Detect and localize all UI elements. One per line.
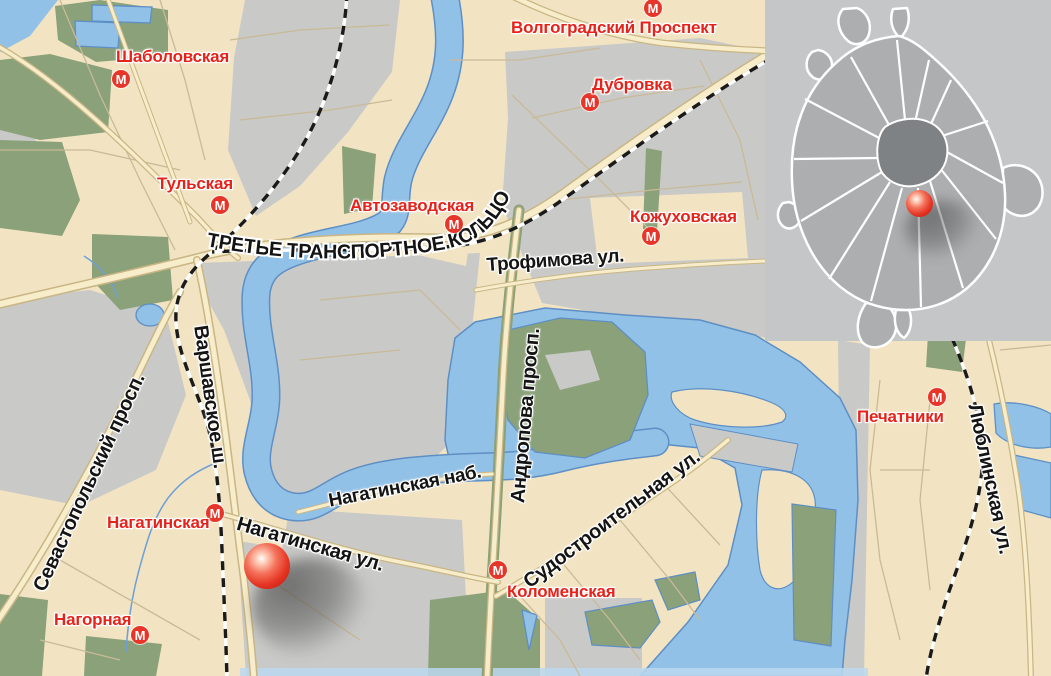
station-label-nagatinskaya: Нагатинская xyxy=(107,514,209,531)
moscow-district-map: ТРЕТЬЕ ТРАНСПОРТНОЕ КОЛЬЦО xyxy=(0,0,1051,676)
station-label-tulskaya: Тульская xyxy=(157,175,233,192)
station-label-avtozavodskaya: Автозаводская xyxy=(350,197,474,214)
metro-icon-nagornaya: М xyxy=(131,626,149,644)
metro-icon-tulskaya: М xyxy=(211,196,229,214)
inset-city-center xyxy=(877,119,947,187)
station-label-kozhukhovskaya: Кожуховская xyxy=(630,208,737,225)
metro-icon-kozhukhovskaya: М xyxy=(642,227,660,245)
metro-icon-avtozavodskaya: М xyxy=(445,215,463,233)
station-label-kolomenskaya: Коломенская xyxy=(507,583,616,600)
metro-icon-pechatniki: М xyxy=(928,388,946,406)
station-label-pechatniki: Печатники xyxy=(857,408,944,425)
inset-map xyxy=(765,0,1051,347)
station-label-volgogradsky: Волгоградский Проспект xyxy=(511,19,717,36)
inset-location-marker xyxy=(906,190,933,217)
location-marker xyxy=(244,543,290,589)
station-label-shabolovskaya: Шаболовская xyxy=(116,48,229,65)
metro-icon-kolomenskaya: М xyxy=(489,561,507,579)
metro-icon-dubrovka: М xyxy=(581,93,599,111)
metro-icon-shabolovskaya: М xyxy=(112,70,130,88)
station-label-nagornaya: Нагорная xyxy=(54,611,131,628)
station-label-dubrovka: Дубровка xyxy=(592,76,672,93)
